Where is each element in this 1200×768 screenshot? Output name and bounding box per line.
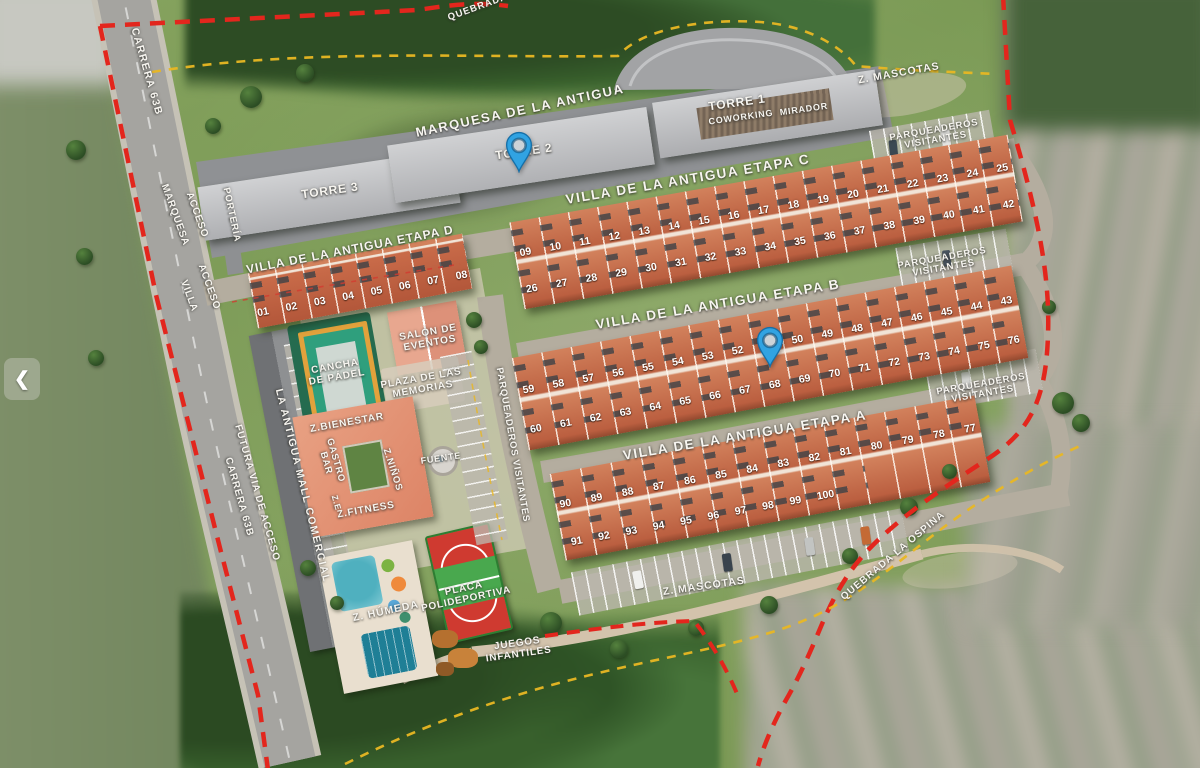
house-number: 62 [589, 410, 603, 424]
house-number: 35 [793, 235, 807, 249]
lap-pool [360, 625, 418, 679]
house-number: 05 [370, 284, 384, 298]
house-number: 32 [704, 251, 718, 265]
house-number: 99 [789, 494, 803, 508]
house-number: 71 [858, 361, 872, 375]
house-number: 28 [585, 272, 599, 286]
parked-car [860, 525, 871, 544]
porteria-booth [224, 249, 243, 275]
house-number: 23 [936, 172, 950, 186]
house-number: 95 [679, 514, 693, 528]
tree [1072, 414, 1090, 432]
house-number: 86 [683, 474, 697, 488]
deck-plant-2 [390, 575, 408, 593]
previous-image-button[interactable]: ❮ [4, 358, 40, 400]
house-number: 11 [578, 235, 591, 249]
house-number: 84 [745, 463, 759, 477]
house-number: 07 [426, 273, 440, 287]
house-number: 87 [652, 480, 666, 494]
house-number: 55 [641, 361, 655, 375]
house-number: 01 [256, 305, 270, 319]
tree [900, 498, 918, 516]
house-number: 30 [644, 261, 658, 275]
tree [1042, 300, 1056, 314]
tree [205, 118, 221, 134]
house-number: 93 [625, 524, 639, 538]
house-number: 14 [667, 219, 681, 233]
house-number: 59 [522, 383, 536, 397]
house-number: 69 [798, 372, 812, 386]
house-number: 96 [707, 509, 721, 523]
house-number: 85 [714, 468, 728, 482]
parked-car [804, 536, 815, 555]
house-number: 63 [619, 405, 633, 419]
house-number: 52 [731, 344, 745, 358]
house-number: 66 [708, 388, 722, 402]
tree [330, 596, 344, 610]
house-number: 43 [1000, 294, 1014, 308]
house-number: 58 [552, 377, 566, 391]
house-number: 02 [285, 300, 299, 314]
house-number: 76 [1007, 333, 1021, 347]
house-number: 45 [940, 305, 954, 319]
map-pin-etapa-b[interactable] [755, 326, 785, 368]
house-number: 67 [738, 383, 752, 397]
house-number: 54 [671, 355, 685, 369]
house-number: 90 [559, 497, 573, 511]
house-number: 73 [917, 350, 931, 364]
map-pin-torre-2[interactable] [504, 131, 534, 173]
house-number: 50 [791, 333, 805, 347]
house-number: 25 [996, 162, 1010, 176]
parked-car [632, 570, 644, 589]
house-number: 08 [455, 268, 469, 282]
house-number: 77 [963, 422, 977, 436]
house-number: 04 [341, 289, 355, 303]
house-number: 65 [678, 394, 692, 408]
house-number: 31 [674, 256, 688, 270]
house-number: 33 [734, 245, 748, 259]
tree [466, 312, 482, 328]
house-number: 88 [621, 486, 635, 500]
house-number: 22 [906, 177, 920, 191]
house-number: 97 [734, 504, 748, 518]
house-number: 92 [597, 529, 611, 543]
house-number: 100 [816, 488, 835, 503]
tree [760, 596, 778, 614]
tree [88, 350, 104, 366]
house-number: 46 [910, 311, 924, 325]
house-number: 21 [876, 183, 890, 197]
deck-plant-1 [381, 558, 396, 573]
tree [300, 560, 316, 576]
tree [240, 86, 262, 108]
house-number: 79 [901, 434, 915, 448]
tree [842, 548, 858, 564]
tree [1052, 392, 1074, 414]
tree [296, 64, 314, 82]
house-number: 94 [652, 519, 666, 533]
house-number: 56 [611, 366, 625, 380]
house-number: 41 [972, 203, 986, 217]
house-number: 29 [615, 266, 629, 280]
house-number: 91 [570, 534, 584, 548]
house-number: 06 [398, 279, 412, 293]
tree [66, 140, 86, 160]
house-number: 80 [870, 439, 884, 453]
house-number: 24 [966, 167, 980, 181]
house-number: 68 [768, 377, 782, 391]
house-number: 48 [850, 322, 864, 336]
house-number: 37 [853, 224, 867, 238]
house-number: 70 [828, 366, 842, 380]
house-number: 15 [697, 214, 711, 228]
house-number: 42 [1002, 198, 1016, 212]
tree [942, 464, 957, 479]
house-number: 36 [823, 230, 837, 244]
tree [610, 640, 628, 658]
house-number: 12 [608, 230, 622, 244]
house-number: 53 [701, 350, 715, 364]
house-number: 89 [590, 491, 604, 505]
masterplan-canvas: 0102030405060708 09101112131415161718192… [0, 0, 1200, 768]
tree [688, 620, 704, 636]
house-number: 34 [763, 240, 777, 254]
house-number: 74 [947, 344, 961, 358]
house-number: 18 [787, 198, 801, 212]
house-number: 17 [757, 204, 771, 218]
house-number: 38 [883, 219, 897, 233]
wellness-courtyard [342, 439, 390, 493]
tree [474, 340, 488, 354]
house-number: 10 [549, 240, 563, 254]
house-number: 44 [970, 300, 984, 314]
house-number: 09 [519, 246, 533, 260]
house-number: 27 [555, 277, 569, 291]
playground-piece-1 [432, 630, 458, 648]
house-number: 16 [727, 209, 741, 223]
house-number: 03 [313, 294, 327, 308]
house-number: 98 [761, 499, 775, 513]
house-number: 40 [942, 209, 956, 223]
house-number: 26 [525, 282, 539, 296]
tree [76, 248, 93, 265]
house-number: 39 [912, 214, 926, 228]
parked-car [722, 552, 733, 571]
house-number: 13 [638, 225, 652, 239]
house-number: 60 [529, 422, 543, 436]
house-number: 20 [846, 188, 860, 202]
house-number: 47 [880, 316, 894, 330]
house-number: 64 [648, 399, 662, 413]
house-number: 49 [820, 327, 834, 341]
chevron-left-icon: ❮ [14, 368, 30, 391]
house-number: 82 [808, 451, 822, 465]
tree [540, 612, 562, 634]
house-number: 83 [777, 457, 791, 471]
house-number: 75 [977, 339, 991, 353]
house-number: 57 [582, 372, 596, 386]
house-number: 78 [932, 428, 946, 442]
house-number: 19 [817, 193, 831, 207]
house-number: 81 [839, 445, 853, 459]
house-number: 72 [887, 355, 901, 369]
playground-piece-3 [436, 662, 454, 676]
house-number: 61 [559, 416, 573, 430]
